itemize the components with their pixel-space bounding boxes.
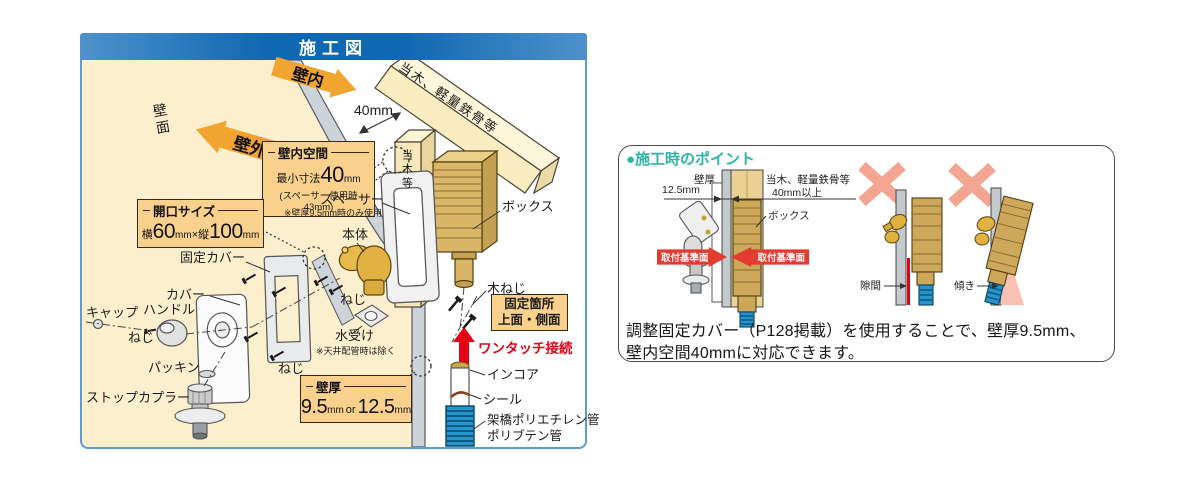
- thickness-v2: 12.5: [358, 396, 395, 419]
- datum-right-label: 取付基準面: [757, 250, 805, 264]
- ng-tilt-label: 傾き: [954, 278, 975, 293]
- pp-backing-value: 40mm以上: [772, 185, 822, 200]
- pp-box-label: ボックス: [768, 208, 810, 223]
- spec-box-opening-size: 開口サイズ 横60mm×縦100mm: [137, 199, 264, 248]
- box-label: ボックス: [502, 200, 554, 215]
- ng-gap-label: 隙間: [860, 278, 881, 293]
- one-touch-label: ワンタッチ接続: [478, 341, 573, 356]
- body-label: 本体: [342, 228, 368, 243]
- opening-title: 開口サイズ: [153, 201, 215, 220]
- water-receiver-label: 水受け: [335, 329, 374, 344]
- opening-w-value: 60: [153, 220, 175, 244]
- fixing-line2: 上面・側面: [498, 313, 561, 329]
- spacer-label: スペーサー: [320, 193, 384, 208]
- opening-w-unit: mm: [175, 230, 192, 241]
- spacer-note-label: ※壁厚9.5mm時のみ使用: [284, 208, 382, 218]
- fixing-line1: 固定箇所: [498, 297, 561, 313]
- thickness-or: or: [346, 404, 356, 416]
- pex-pipe-label: 架橋ポリエチレン管: [487, 413, 600, 427]
- cap-label: キャップ: [86, 306, 138, 321]
- points-note-line2: 壁内空間40mmに対応できます。: [626, 339, 864, 363]
- points-heading: ●施工時のポイント: [626, 148, 755, 169]
- thickness-title: 壁厚: [316, 377, 341, 396]
- screw-label-b: ねじ: [278, 362, 304, 377]
- spec-box-wall-thickness: 壁厚 9.5mmor12.5mm: [300, 375, 412, 423]
- backing-post-label: 当木等: [400, 149, 412, 191]
- dim-40mm-label: 40mm: [354, 103, 393, 119]
- thickness-v1: 9.5: [301, 396, 327, 419]
- wood-screw-label: 木ねじ: [487, 282, 526, 297]
- cavity-title: 壁内空間: [278, 143, 328, 162]
- screw-label-c: ねじ: [340, 293, 366, 308]
- water-receiver-note-label: ※天井配管時は除く: [316, 346, 396, 356]
- opening-h-prefix: 縦: [198, 226, 209, 242]
- cover-label: カバー: [166, 288, 205, 303]
- diagram-title-bar: 施工図: [80, 33, 587, 60]
- pp-wall-thickness-value: 12.5mm: [662, 184, 700, 196]
- thickness-u2: mm: [395, 405, 412, 416]
- opening-h-unit: mm: [243, 230, 260, 241]
- catalog-figure: 施工図 壁内 壁外 壁面 40mm 当木、軽量鉄骨等 当木等 壁内空間 最小寸法…: [0, 0, 1200, 500]
- fixing-points-box: 固定箇所 上面・側面: [491, 294, 568, 331]
- cavity-prefix: 最小寸法: [276, 170, 320, 186]
- seal-label: シール: [483, 393, 522, 408]
- cavity-value: 40: [320, 162, 343, 188]
- points-note-line1: 調整固定カバー（P128掲載）を使用することで、壁厚9.5mm、: [626, 317, 1086, 341]
- opening-w-prefix: 横: [142, 226, 153, 242]
- pb-pipe-label: ポリブテン管: [487, 429, 562, 443]
- incore-label: インコア: [487, 368, 539, 383]
- fixed-cover-label: 固定カバー: [180, 251, 245, 266]
- packing-label: パッキン: [148, 361, 200, 376]
- screw-label-a: ねじ: [128, 331, 154, 346]
- datum-left-label: 取付基準面: [661, 250, 709, 264]
- handle-label: ハンドル: [143, 303, 195, 318]
- thickness-u1: mm: [327, 405, 344, 416]
- cavity-unit: mm: [344, 174, 361, 185]
- stop-coupler-label: ストップカプラー: [86, 391, 190, 406]
- opening-h-value: 100: [209, 220, 243, 244]
- diagram-title: 施工図: [299, 34, 368, 59]
